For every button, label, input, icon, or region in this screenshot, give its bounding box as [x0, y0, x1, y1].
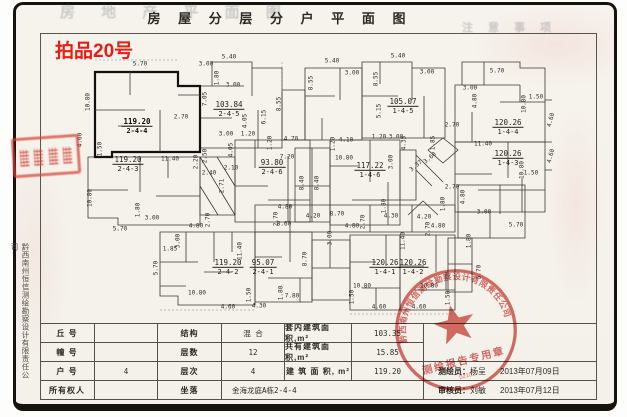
label-zhuang-hao: 幢 号 — [40, 343, 95, 362]
label-floors: 层数 — [158, 343, 222, 362]
rect-seal — [11, 134, 82, 179]
seal-star-icon — [430, 301, 479, 347]
label-total-area: 建 筑 面 积, m² — [285, 362, 352, 381]
seal-glyph — [19, 149, 29, 167]
label-location: 坐落 — [158, 381, 222, 400]
value-location: 金海龙庭A栋2-4-4 — [222, 381, 424, 400]
label-qiu-hao: 丘 号 — [40, 324, 95, 343]
seal-glyph — [48, 147, 58, 165]
label-owner: 所有权人 — [40, 381, 95, 400]
value-level: 4 — [222, 362, 285, 381]
value-qiu-hao — [95, 324, 158, 343]
scanned-floorplan-document: { "title": "房 屋 分 层 分 户 平 面 图", "auction… — [0, 0, 627, 414]
seal-code: 02102 — [459, 371, 476, 381]
seal-glyph — [34, 148, 44, 166]
value-floors: 12 — [222, 343, 285, 362]
seal-title: 测绘报告专用章 — [421, 344, 507, 377]
label-structure: 结构 — [158, 324, 222, 343]
label-level: 层次 — [158, 362, 222, 381]
value-zhuang-hao — [95, 343, 158, 362]
value-owner — [95, 381, 158, 400]
label-shared-area: 共有建筑面积,m² — [285, 343, 352, 362]
value-hu-hao: 4 — [95, 362, 158, 381]
seal-glyph — [63, 146, 73, 164]
label-inner-area: 套内建筑面积,m² — [285, 324, 352, 343]
value-structure: 混 合 — [222, 324, 285, 343]
label-hu-hao: 户 号 — [40, 362, 95, 381]
